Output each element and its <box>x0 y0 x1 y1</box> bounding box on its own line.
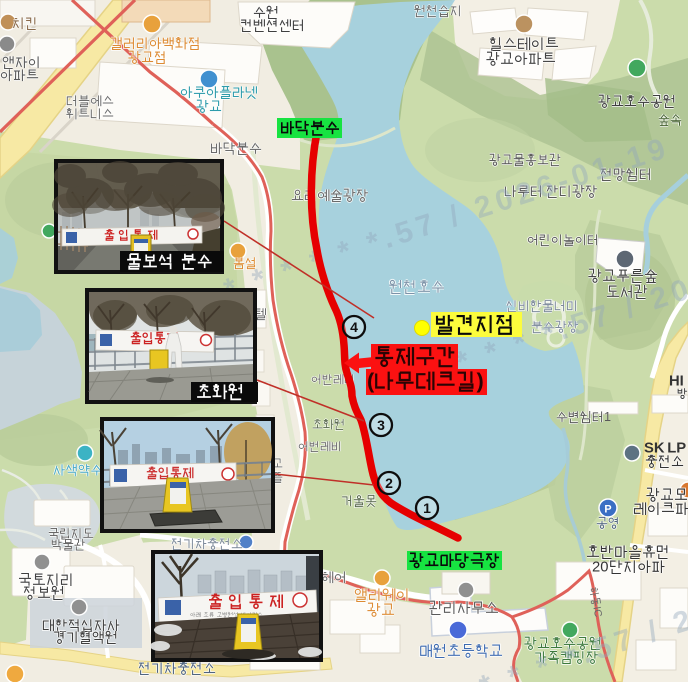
svg-text:LP: LP <box>667 441 686 457</box>
svg-text:HI: HI <box>669 374 684 390</box>
svg-text:): ) <box>477 368 484 393</box>
svg-text:3: 3 <box>377 417 385 433</box>
svg-text:4: 4 <box>350 319 358 335</box>
svg-text:1: 1 <box>423 500 431 516</box>
svg-text:20: 20 <box>592 560 608 576</box>
svg-text:(: ( <box>367 368 375 393</box>
svg-text:P: P <box>604 504 611 516</box>
svg-text:1: 1 <box>604 410 611 424</box>
svg-text:2: 2 <box>385 475 393 491</box>
svg-text:SK: SK <box>644 441 665 457</box>
